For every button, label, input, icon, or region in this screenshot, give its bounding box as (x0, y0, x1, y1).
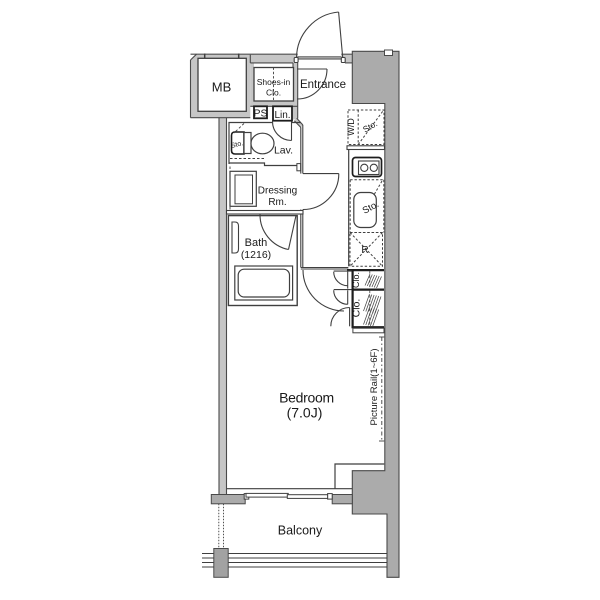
svg-text:Clo.: Clo. (266, 88, 281, 98)
svg-text:(7.0J): (7.0J) (287, 405, 323, 421)
svg-text:R: R (361, 245, 368, 256)
svg-text:Shoes-in: Shoes-in (257, 77, 291, 87)
svg-text:Rm.: Rm. (268, 197, 286, 208)
svg-text:Lav.: Lav. (274, 145, 293, 157)
svg-text:W/D: W/D (346, 118, 356, 136)
svg-text:PS: PS (253, 108, 267, 120)
svg-text:Bedroom: Bedroom (279, 390, 334, 406)
svg-text:Sto.: Sto. (361, 118, 379, 134)
svg-text:Clo.: Clo. (351, 272, 361, 288)
svg-text:Entrance: Entrance (300, 79, 346, 91)
svg-text:MB: MB (212, 80, 232, 95)
svg-text:(1216): (1216) (241, 249, 271, 261)
svg-text:Dressing: Dressing (258, 186, 297, 197)
svg-text:Picture Rail(1~6F): Picture Rail(1~6F) (369, 349, 379, 426)
svg-text:Clo.: Clo. (351, 299, 363, 318)
svg-text:Lin.: Lin. (274, 110, 290, 121)
svg-text:Bath: Bath (245, 237, 268, 249)
svg-text:Balcony: Balcony (278, 524, 323, 538)
